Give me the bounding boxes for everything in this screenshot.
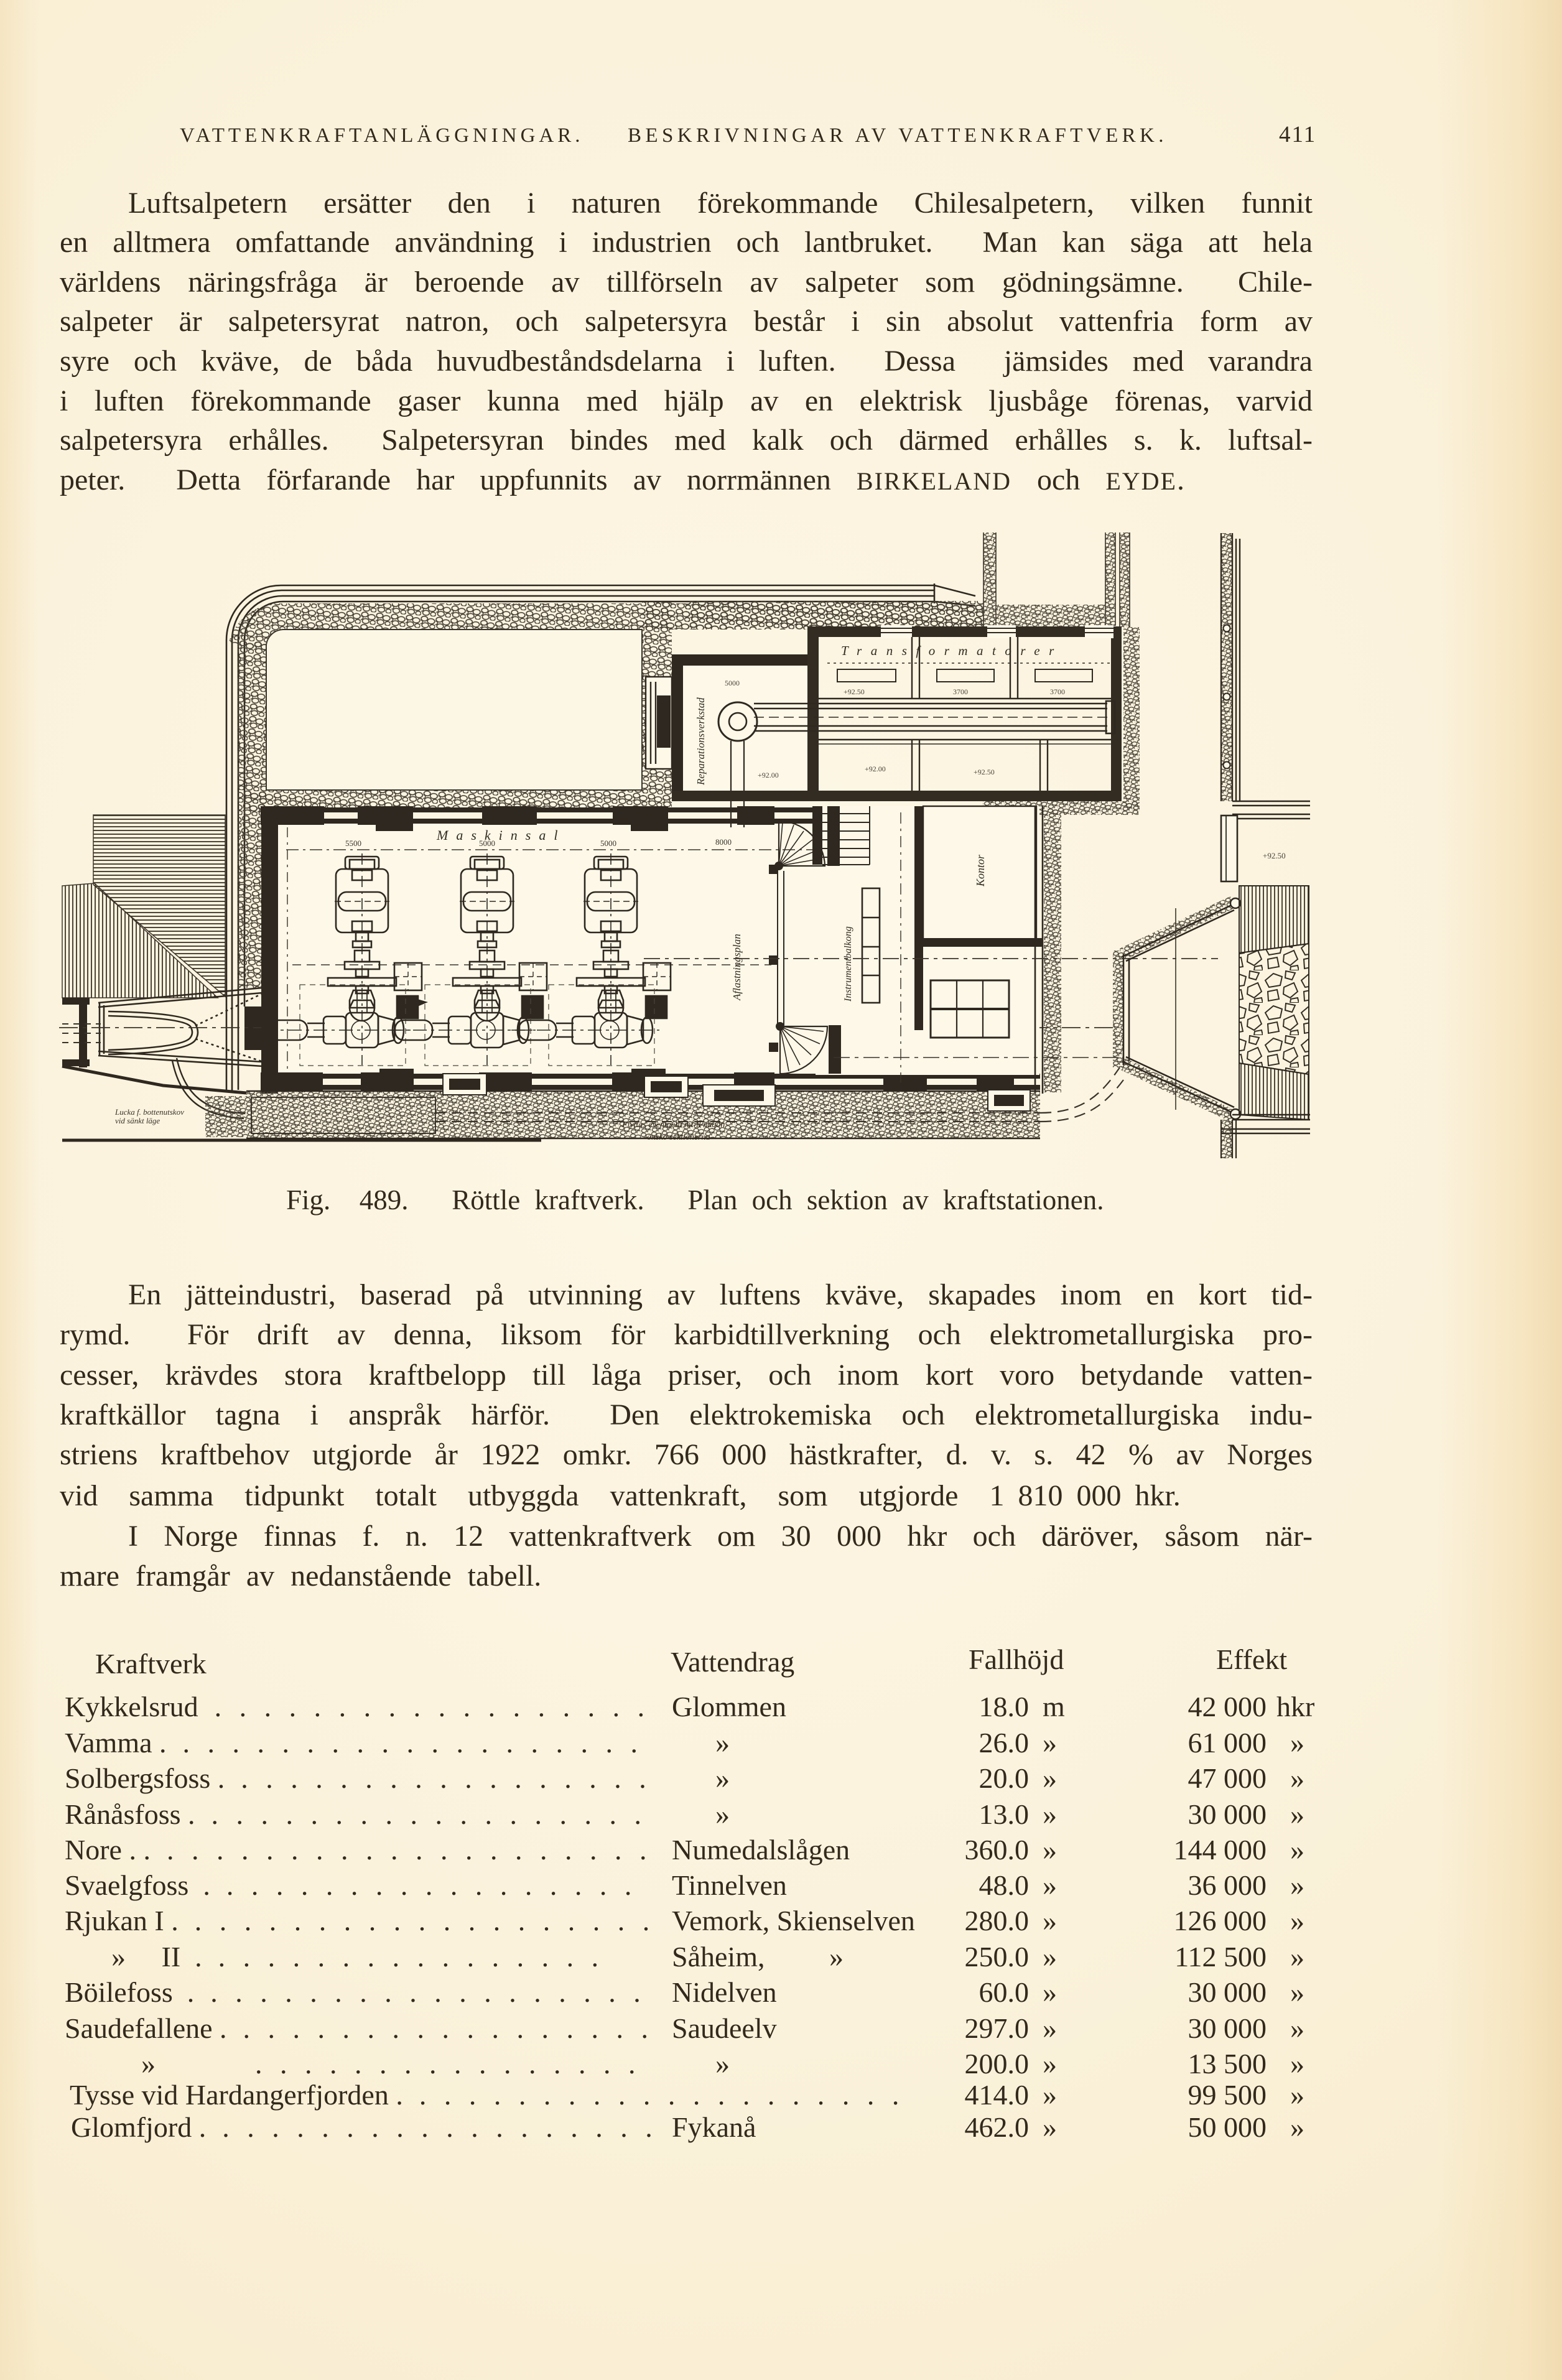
svg-text:Lucka f. bottenutskov: Lucka f. bottenutskov bbox=[114, 1107, 184, 1117]
svg-text:Flyttas eventuellt mt-ll någon: Flyttas eventuellt mt-ll någon bbox=[621, 1120, 725, 1130]
svg-text:5000: 5000 bbox=[479, 839, 495, 848]
svg-text:+92.00: +92.00 bbox=[865, 765, 886, 773]
svg-text:Reparationsverkstad: Reparationsverkstad bbox=[695, 697, 707, 786]
svg-text:vid sänkt läge: vid sänkt läge bbox=[115, 1116, 160, 1125]
svg-text:5000: 5000 bbox=[600, 839, 616, 848]
svg-text:3700: 3700 bbox=[953, 687, 968, 696]
svg-text:5000: 5000 bbox=[725, 679, 740, 687]
svg-text:8000: 8000 bbox=[715, 837, 732, 847]
svg-text:Maskinsal: Maskinsal bbox=[436, 827, 565, 843]
svg-text:3700: 3700 bbox=[1050, 687, 1065, 696]
svg-text:+92.00: +92.00 bbox=[758, 771, 779, 779]
svg-text:Aflastningsplan: Aflastningsplan bbox=[731, 934, 743, 1001]
svg-text:önskö sektionerna: önskö sektionerna bbox=[647, 1133, 710, 1142]
svg-text:+92.50: +92.50 bbox=[1263, 851, 1286, 860]
svg-text:+92.50: +92.50 bbox=[844, 687, 865, 696]
svg-text:Instrumentbalkong: Instrumentbalkong bbox=[843, 926, 853, 1002]
svg-text:Transformatorer: Transformatorer bbox=[841, 643, 1063, 658]
svg-text:Kontor: Kontor bbox=[974, 854, 987, 887]
svg-text:+92.50: +92.50 bbox=[974, 768, 995, 776]
svg-text:5500: 5500 bbox=[345, 839, 361, 848]
